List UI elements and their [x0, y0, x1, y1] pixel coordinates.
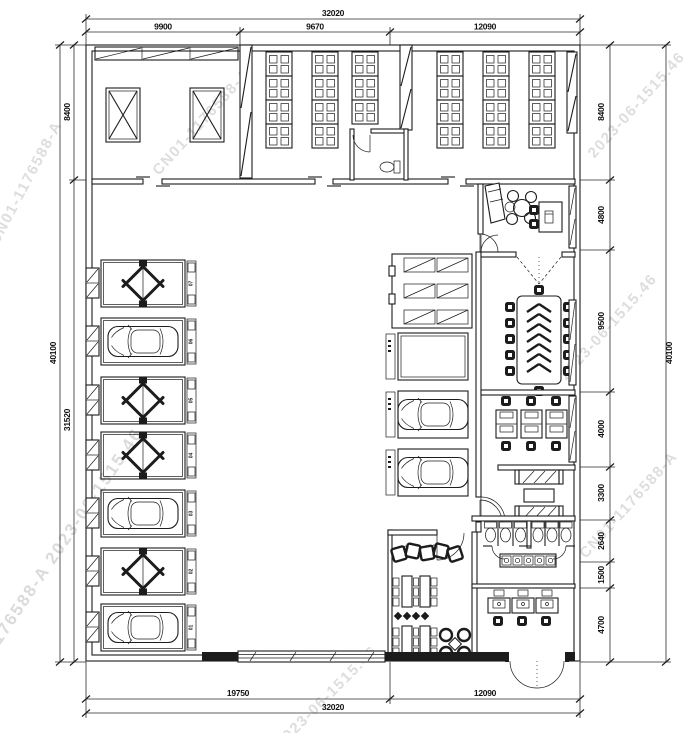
- dim-top-seg: 12090: [474, 22, 497, 32]
- reception-office: [485, 183, 576, 248]
- parts-shelf: [389, 254, 472, 328]
- bay-label: 05: [189, 398, 195, 404]
- bay-label: 01: [189, 625, 195, 631]
- dim-top-seg: 9670: [306, 22, 324, 32]
- dim-left-seg: 31520: [62, 408, 72, 431]
- sink-counter: [500, 554, 556, 567]
- dim-left-seg: 8400: [62, 103, 72, 121]
- dim-right-seg: 1500: [596, 566, 606, 584]
- storage-racks-room-c: [437, 52, 555, 148]
- corner-desk: [485, 183, 515, 223]
- dim-left-outer: 40100: [48, 341, 58, 364]
- office-window: [569, 186, 576, 248]
- floorplan-sheet: CN01-1176588-A CN01-1176588-A 2023-06-15…: [0, 0, 700, 733]
- dim-top-total: 32020: [322, 8, 345, 18]
- dim-right-seg: 8400: [596, 103, 606, 121]
- entrance-double-door: [505, 651, 569, 688]
- right-wall-window: [567, 52, 577, 133]
- column-a-b: [240, 45, 252, 178]
- top-band-bottom-wall: [92, 177, 575, 186]
- watermark-text: CN01-1176588-A: [0, 118, 66, 248]
- bay-label: 06: [189, 339, 195, 345]
- dim-right-seg: 3300: [596, 484, 606, 502]
- office-workstation: [512, 590, 534, 626]
- watermark-text: CN01-1176588-A: [149, 65, 254, 179]
- manager-desk: [529, 202, 562, 232]
- equipment-box: [106, 88, 140, 142]
- dim-right-seg: 4800: [596, 206, 606, 224]
- bay-label: 02: [189, 569, 195, 575]
- office-workstation: [536, 590, 558, 626]
- left-service-bays: 07 06 05 04 03 02 01: [86, 260, 196, 651]
- sofa: [515, 470, 563, 484]
- dim-right-outer: 40100: [664, 341, 674, 364]
- dim-right-seg: 4000: [596, 420, 606, 438]
- waiting-room: [388, 530, 477, 660]
- floor-plan-drawing: CN01-1176588-A CN01-1176588-A 2023-06-15…: [0, 0, 700, 733]
- dim-bottom-seg: 12090: [474, 688, 497, 698]
- middle-column: [386, 235, 502, 660]
- waiting-chairs: [391, 543, 463, 562]
- rest-tables: [393, 576, 437, 656]
- dim-right-seg: 4700: [596, 616, 606, 634]
- toilet-block: [472, 516, 575, 588]
- bottom-wall-features: [202, 651, 575, 688]
- dim-top-seg: 9900: [154, 22, 172, 32]
- workstation: [496, 396, 517, 451]
- roller-door: [238, 651, 385, 662]
- corridor-wall: [476, 252, 481, 497]
- bay-label: 04: [189, 453, 195, 459]
- column-b-c: [400, 45, 412, 130]
- watermark-text: CN01-1176588-A: [576, 448, 681, 562]
- conference-window: [569, 300, 576, 385]
- back-office: [488, 590, 558, 626]
- staff-office-window: [569, 396, 576, 462]
- toilet-icon: [380, 161, 400, 173]
- coffee-table: [524, 489, 554, 502]
- bay-label: 03: [189, 511, 195, 517]
- bay-label: 07: [189, 281, 195, 287]
- dim-bottom-total: 32020: [322, 702, 345, 712]
- dim-right-seg: 9500: [596, 312, 606, 330]
- lounge: [481, 470, 563, 521]
- conference-table-pattern: [527, 304, 551, 372]
- workstation: [546, 396, 567, 451]
- dim-bottom-seg: 19750: [227, 688, 250, 698]
- office-workstation: [488, 590, 510, 626]
- small-bathroom: [350, 129, 408, 180]
- right-wing: [472, 183, 576, 626]
- dim-right-seg: 2640: [596, 532, 606, 550]
- storage-racks-room-b: [266, 52, 378, 148]
- middle-bays: [386, 333, 468, 496]
- workstation: [521, 396, 542, 451]
- staff-office: [496, 396, 576, 470]
